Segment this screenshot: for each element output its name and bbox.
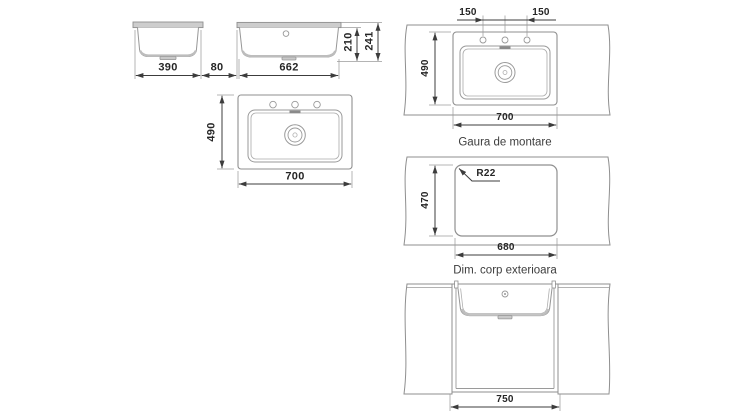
dim-label-edge-offset: 80: [211, 63, 224, 74]
tap-hole-icon: [480, 37, 486, 43]
dim-label-tap-spacing-left: 150: [459, 8, 477, 18]
dim-label-plan-depth: 490: [207, 122, 218, 141]
dim-label-corner-radius: R22: [476, 169, 495, 179]
sink-dimension-sheet: 390 80 662 210 241 490 700 150 150 490 7…: [0, 0, 740, 416]
dim-label-mount-depth: 490: [421, 59, 431, 77]
front-view-drawing: [237, 22, 341, 60]
tap-hole-icon: [292, 101, 299, 108]
overflow-slot-icon: [500, 47, 511, 50]
dim-label-side-width: 390: [158, 63, 177, 74]
tap-hole-icon: [502, 37, 508, 43]
tap-hole-icon: [270, 101, 277, 108]
dim-label-tap-spacing-right: 150: [532, 8, 550, 18]
dim-label-cutout-width: 680: [497, 243, 515, 253]
dim-label-plan-width: 700: [285, 172, 304, 183]
caption-exterior-body: Dim. corp exterioara: [453, 265, 557, 277]
overflow-slot-icon: [290, 111, 301, 114]
dim-label-cutout-depth: 470: [421, 191, 431, 209]
dim-label-bowl-depth: 210: [344, 32, 355, 51]
cabinet-view-drawing: [404, 281, 610, 394]
plan-view-drawing: [238, 95, 352, 169]
dim-label-overall-height: 241: [365, 31, 376, 50]
tap-hole-icon: [314, 101, 321, 108]
dim-label-front-width: 662: [279, 63, 298, 74]
technical-drawing: [0, 0, 740, 416]
caption-mounting-hole: Gaura de montare: [458, 137, 551, 149]
dim-label-mount-width: 700: [496, 113, 514, 123]
side-view-drawing: [133, 22, 203, 60]
dim-label-cabinet-width: 750: [496, 395, 514, 405]
tap-hole-icon: [524, 37, 530, 43]
